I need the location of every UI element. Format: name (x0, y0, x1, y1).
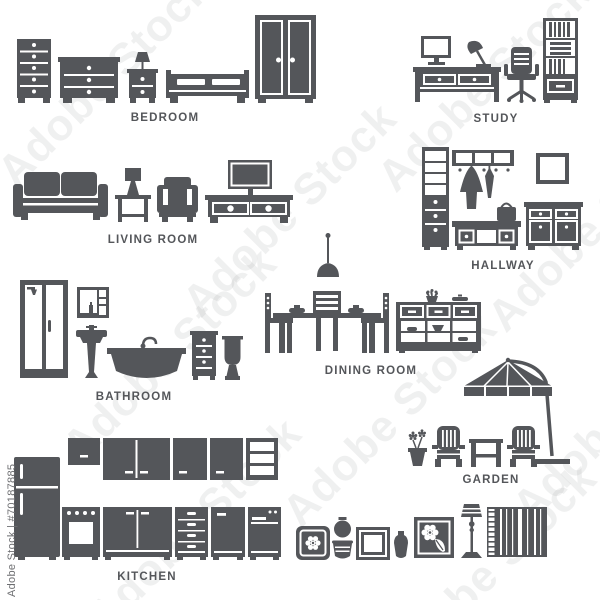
pillow-icon (296, 526, 330, 560)
bathroom-label: BATHROOM (96, 391, 172, 403)
flower-pot-icon (407, 429, 428, 467)
floor-lamp-icon (461, 504, 482, 558)
toilet-icon (222, 336, 243, 380)
empty-frame-icon (356, 527, 390, 560)
mirror-cabinet-icon (77, 287, 109, 318)
wall-cabinet-icon (210, 438, 243, 480)
adirondack-chair-icon (432, 426, 465, 467)
garden-table-icon (469, 439, 503, 467)
open-shelf-cabinet-icon (246, 438, 278, 480)
desk-computer-lamp-icon (413, 36, 501, 102)
wall-cabinet-double-icon (103, 438, 170, 480)
side-table-lamp-icon (115, 168, 151, 222)
shoe-bench-bag-icon (452, 202, 521, 250)
dining-room-label: DINING ROOM (325, 365, 417, 377)
tall-dresser-icon (15, 39, 53, 103)
dresser-icon (58, 57, 120, 103)
adirondack-chair-icon (507, 426, 540, 467)
armchair-icon (157, 177, 198, 222)
bed-icon (166, 67, 249, 103)
drawer-unit-icon (175, 507, 208, 560)
nightstand-lamp-icon (127, 52, 158, 103)
living-room-label: LIVING ROOM (108, 234, 199, 246)
rug-icon (487, 507, 547, 559)
wall-cabinet-small-icon (68, 438, 100, 465)
kitchen-label: KITCHEN (117, 571, 177, 583)
mirror-icon (536, 153, 569, 184)
fridge-icon (14, 457, 60, 560)
wall-cabinet-icon (173, 438, 207, 480)
pedestal-sink-icon (76, 325, 107, 378)
stock-attribution-text: Adobe Stock | #70187885 (6, 464, 18, 597)
tv-stand-icon (205, 160, 293, 223)
study-label: STUDY (474, 113, 519, 125)
stock-illustration-canvas: Adobe Stock Adobe Stock Adobe Stock Adob… (0, 0, 600, 600)
hall-chest-icon (524, 202, 583, 250)
vase-set-icon (332, 517, 353, 560)
base-cabinet-icon (211, 507, 245, 560)
office-chair-icon (504, 47, 539, 103)
bathtub-icon (107, 336, 186, 378)
sofa-icon (13, 172, 108, 223)
small-vase-icon (394, 531, 408, 560)
bookcase-icon (543, 18, 578, 103)
dining-table-chairs-icon (264, 291, 390, 353)
wardrobe-icon (255, 15, 316, 103)
stove-icon (62, 507, 100, 560)
bath-cabinet-icon (190, 331, 218, 380)
dishwasher-icon (248, 507, 281, 560)
picture-frame-icon (414, 517, 454, 558)
tall-cabinet-icon (422, 147, 449, 250)
sideboard-icon (396, 288, 481, 353)
garden-label: GARDEN (462, 474, 519, 486)
shower-cabin-icon (20, 280, 68, 378)
pendant-lamp-icon (317, 233, 339, 277)
bedroom-label: BEDROOM (131, 112, 199, 124)
base-cabinet-double-icon (103, 507, 172, 560)
hallway-label: HALLWAY (471, 260, 535, 272)
